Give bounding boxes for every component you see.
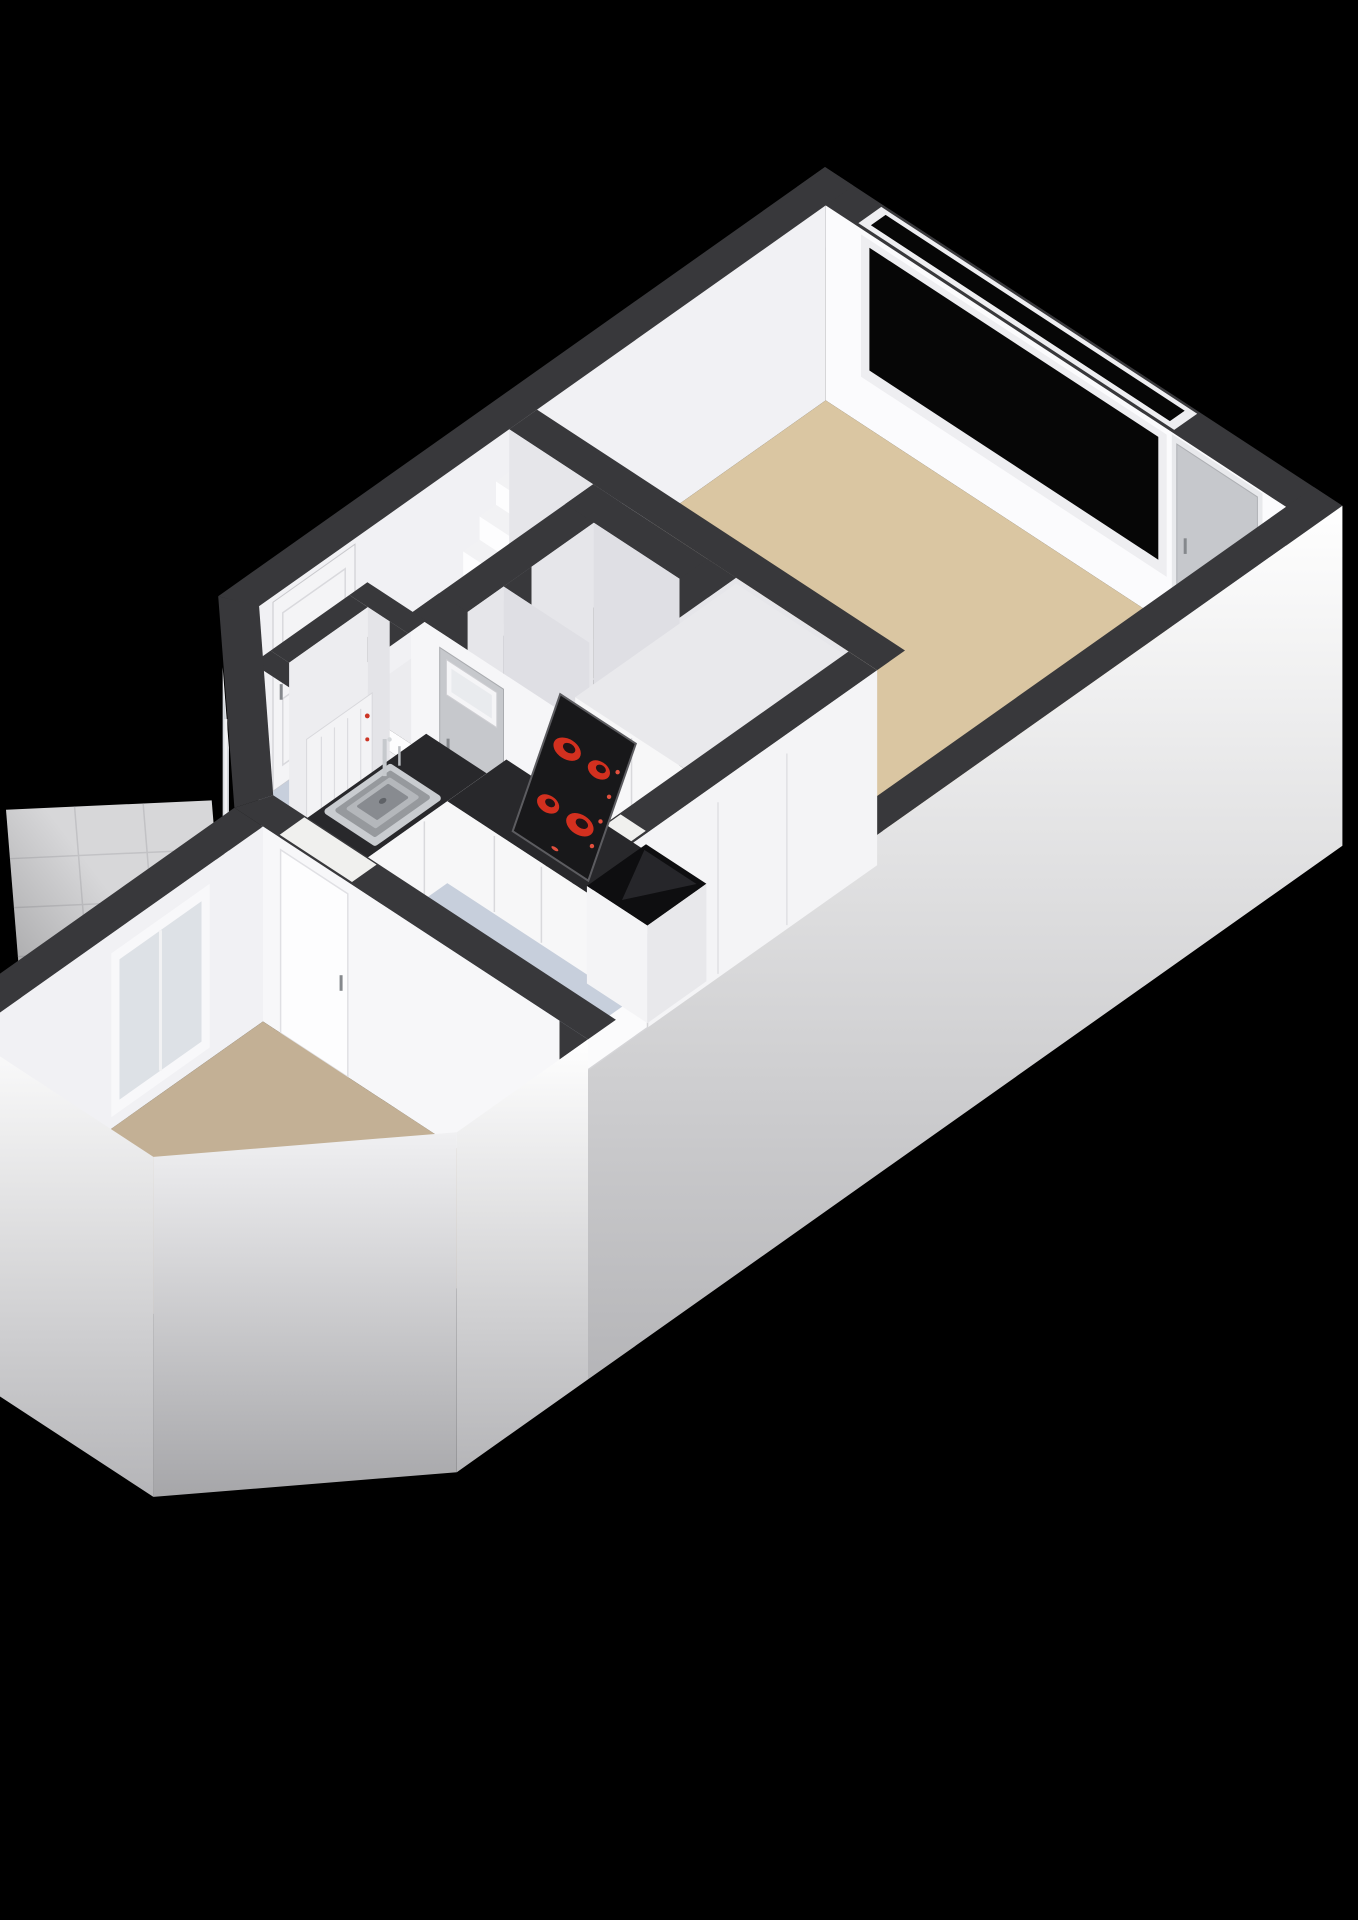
faucet-spout bbox=[384, 739, 385, 760]
stove-knob bbox=[615, 770, 619, 774]
faucet-handle bbox=[387, 737, 391, 741]
stove-knob bbox=[607, 795, 611, 799]
floor-plan-canvas bbox=[0, 0, 1358, 1920]
radiator-valve bbox=[365, 714, 370, 719]
stove-knob bbox=[598, 819, 602, 823]
radiator-valve bbox=[365, 737, 369, 741]
room-wall-outer bbox=[153, 1132, 456, 1497]
floor-plan-3d bbox=[0, 0, 1358, 1920]
stove-knob bbox=[590, 844, 594, 848]
